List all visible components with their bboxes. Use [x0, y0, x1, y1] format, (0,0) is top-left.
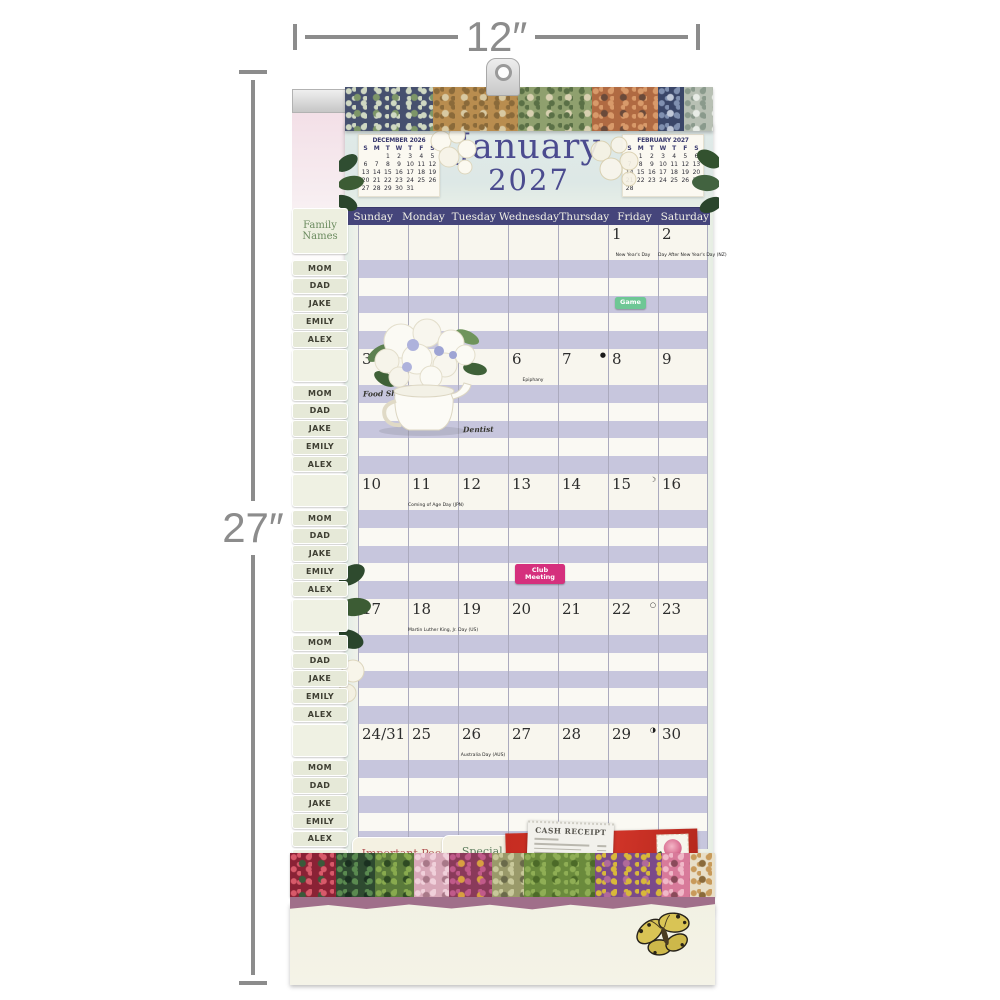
- minical-date: 8: [382, 161, 393, 169]
- family-name-tab: MOM: [292, 385, 348, 401]
- family-name-tab: MOM: [292, 260, 348, 276]
- minical-date: 31: [405, 185, 416, 193]
- holiday-note: Martin Luther King, Jr. Day (US): [408, 629, 458, 634]
- minical-date: 16: [393, 169, 404, 177]
- date-cell: 7●: [558, 349, 608, 385]
- member-row-stripe: [358, 760, 708, 778]
- minical-date: 9: [646, 161, 657, 169]
- holiday-note: Epiphany: [508, 379, 558, 384]
- family-name-tab: MOM: [292, 510, 348, 526]
- flower-cluster-icon: [423, 125, 481, 181]
- minical-day-label: T: [382, 145, 393, 153]
- minical-day-label: T: [405, 145, 416, 153]
- member-row-stripe: [358, 456, 708, 474]
- blank-tab: [292, 724, 348, 757]
- member-row-stripe: [358, 278, 708, 296]
- width-dimension-annotation: 12″: [293, 14, 700, 60]
- wall-calendar-product: DECEMBER 2026SMTWTFS12345678910111213141…: [290, 85, 715, 985]
- family-name-tab: EMILY: [292, 688, 348, 704]
- holiday-note: Day After New Year's Day (NZ): [658, 254, 708, 259]
- member-row-stripe: [358, 635, 708, 653]
- date-band: 24/312526Australia Day (AUS)272829◑30: [358, 724, 708, 760]
- date-cell: 6Epiphany: [508, 349, 558, 385]
- hanger-tab: [486, 58, 520, 96]
- moon-phase-icon: ○: [650, 601, 656, 609]
- blank-tab: [292, 349, 348, 382]
- holiday-note: New Year's Day: [608, 254, 658, 259]
- patchwork-tile: [595, 853, 662, 897]
- date-cell: 27: [508, 724, 558, 760]
- weekday-label: Thursday: [559, 211, 609, 223]
- moon-phase-icon: ◑: [650, 726, 656, 734]
- minical-date: 10: [405, 161, 416, 169]
- minical-date: 24: [657, 177, 668, 185]
- date-number: 11: [412, 475, 431, 493]
- date-band: 1011Coming of Age Day (JPN)12131415☽16: [358, 474, 708, 510]
- date-number: 13: [512, 475, 531, 493]
- minical-date: 25: [669, 177, 680, 185]
- minical-date: 3: [405, 153, 416, 161]
- date-cell: 12: [458, 474, 508, 510]
- patchwork-tile: [518, 87, 592, 131]
- minical-date: 24: [405, 177, 416, 185]
- minical-day-label: T: [646, 145, 657, 153]
- patchwork-tile: [662, 853, 690, 897]
- flower-cluster-icon: [581, 133, 645, 193]
- dimension-tick: [239, 981, 267, 985]
- date-cell: [408, 224, 458, 260]
- patchwork-tile: [290, 853, 336, 897]
- date-number: 14: [562, 475, 581, 493]
- patchwork-tile: [414, 853, 449, 897]
- event-sticker: Club Meeting: [515, 564, 565, 584]
- family-name-tab: ALEX: [292, 581, 348, 597]
- date-number: 1: [612, 225, 622, 243]
- member-row-stripe: [358, 671, 708, 689]
- date-number: 8: [612, 350, 622, 368]
- weekday-label: Monday: [398, 211, 448, 223]
- family-name-tab: ALEX: [292, 456, 348, 472]
- minical-date: 15: [382, 169, 393, 177]
- date-number: 27: [512, 725, 531, 743]
- butterfly-icon: [626, 903, 703, 969]
- date-number: 6: [512, 350, 522, 368]
- date-number: 25: [412, 725, 431, 743]
- minical-date: 14: [371, 169, 382, 177]
- date-number: 20: [512, 600, 531, 618]
- date-band: 1718Martin Luther King, Jr. Day (US)1920…: [358, 599, 708, 635]
- family-name-tab: ALEX: [292, 331, 348, 347]
- family-name-tab: ALEX: [292, 831, 348, 847]
- minical-date: 23: [393, 177, 404, 185]
- family-name-tab: EMILY: [292, 563, 348, 579]
- date-cell: 2Day After New Year's Day (NZ): [658, 224, 708, 260]
- date-number: 9: [662, 350, 672, 368]
- dimension-tick: [293, 24, 297, 50]
- moon-phase-icon: ☽: [650, 476, 656, 484]
- family-name-tab: EMILY: [292, 313, 348, 329]
- patchwork-tile: [658, 87, 684, 131]
- family-name-tab: MOM: [292, 760, 348, 776]
- family-names-header-tab: Family Names: [292, 208, 348, 254]
- blank-tab: [292, 599, 348, 632]
- patchwork-tile: [345, 87, 433, 131]
- date-cell: 16: [658, 474, 708, 510]
- bottom-patchwork-strip: [290, 853, 715, 897]
- date-number: 22: [612, 600, 631, 618]
- moon-phase-icon: ●: [600, 351, 606, 359]
- minical-day-label: T: [669, 145, 680, 153]
- family-name-tab: DAD: [292, 777, 348, 793]
- date-number: 29: [612, 725, 631, 743]
- weekday-label: Tuesday: [449, 211, 499, 223]
- holiday-note: Coming of Age Day (JPN): [408, 504, 458, 509]
- minical-date: 4: [669, 153, 680, 161]
- minical-day-label: M: [371, 145, 382, 153]
- minical-date: 23: [646, 177, 657, 185]
- date-number: 28: [562, 725, 581, 743]
- date-cell: [508, 224, 558, 260]
- minical-date: [669, 185, 680, 193]
- date-cell: 15☽: [608, 474, 658, 510]
- minical-date: [646, 185, 657, 193]
- family-name-tab: DAD: [292, 528, 348, 544]
- date-cell: 9: [658, 349, 708, 385]
- minical-date: 21: [371, 177, 382, 185]
- date-cell: [458, 224, 508, 260]
- minical-date: 18: [669, 169, 680, 177]
- date-cell: 14: [558, 474, 608, 510]
- date-number: 19: [462, 600, 481, 618]
- member-row-stripe: [358, 653, 708, 671]
- member-row-stripe: [358, 706, 708, 724]
- date-number: 7: [562, 350, 572, 368]
- width-dimension-label: 12″: [466, 16, 528, 58]
- minical-date: 2: [646, 153, 657, 161]
- date-number: 30: [662, 725, 681, 743]
- date-cell: 11Coming of Age Day (JPN): [408, 474, 458, 510]
- date-number: 2: [662, 225, 672, 243]
- date-number: 16: [662, 475, 681, 493]
- minical-date: 2: [393, 153, 404, 161]
- family-name-tab: JAKE: [292, 795, 348, 811]
- family-name-tab: ALEX: [292, 706, 348, 722]
- hanger-hole-icon: [495, 64, 512, 81]
- date-cell: 20: [508, 599, 558, 635]
- dimension-tick: [239, 70, 267, 74]
- family-name-tab: DAD: [292, 403, 348, 419]
- minical-date: 22: [382, 177, 393, 185]
- flower-bouquet-illustration: [355, 305, 497, 437]
- patchwork-tile: [336, 853, 375, 897]
- height-dimension-label: 27″: [222, 507, 284, 549]
- blank-tab: [292, 474, 348, 507]
- patchwork-tile: [524, 853, 595, 897]
- family-name-tab: JAKE: [292, 545, 348, 561]
- minical-date: [416, 185, 427, 193]
- minical-date: [427, 185, 438, 193]
- member-row-stripe: [358, 510, 708, 528]
- minical-week-row: 2728293031: [360, 185, 438, 193]
- family-name-tab: EMILY: [292, 438, 348, 454]
- date-cell: 23: [658, 599, 708, 635]
- family-name-tab: EMILY: [292, 813, 348, 829]
- family-name-tab: DAD: [292, 653, 348, 669]
- event-sticker: Game: [615, 297, 646, 309]
- top-patchwork-strip: [345, 87, 713, 131]
- minical-date: 17: [657, 169, 668, 177]
- date-number: 21: [562, 600, 581, 618]
- date-cell: 18Martin Luther King, Jr. Day (US): [408, 599, 458, 635]
- date-cell: 24/31: [358, 724, 408, 760]
- member-stripes: [358, 510, 708, 599]
- minical-date: 11: [669, 161, 680, 169]
- minical-date: 10: [657, 161, 668, 169]
- date-cell: 29◑: [608, 724, 658, 760]
- date-number: 12: [462, 475, 481, 493]
- minical-date: 16: [646, 169, 657, 177]
- patchwork-tile: [592, 87, 658, 131]
- dimension-line: [251, 555, 255, 976]
- member-stripes: [358, 635, 708, 724]
- date-cell: 28: [558, 724, 608, 760]
- date-band: 1New Year's Day2Day After New Year's Day…: [358, 224, 708, 260]
- date-cell: 10: [358, 474, 408, 510]
- weekday-header-bar: SundayMondayTuesdayWednesdayThursdayFrid…: [348, 207, 710, 225]
- calendar-week-row: 1718Martin Luther King, Jr. Day (US)1920…: [358, 599, 708, 724]
- family-name-tab: DAD: [292, 278, 348, 294]
- dimension-line: [535, 35, 688, 39]
- date-number: 15: [612, 475, 631, 493]
- minical-date: 1: [382, 153, 393, 161]
- patchwork-tile: [684, 87, 713, 131]
- minical-date: 30: [393, 185, 404, 193]
- date-number: 23: [662, 600, 681, 618]
- calendar-page: DECEMBER 2026SMTWTFS12345678910111213141…: [345, 125, 713, 915]
- date-cell: 1New Year's Day: [608, 224, 658, 260]
- dimension-tick: [696, 24, 700, 50]
- member-row-stripe: [358, 260, 708, 278]
- minical-date: [371, 153, 382, 161]
- date-cell: 21: [558, 599, 608, 635]
- receipt-title: CASH RECEIPT: [528, 826, 614, 838]
- calendar-header: DECEMBER 2026SMTWTFS12345678910111213141…: [345, 125, 713, 207]
- date-cell: [358, 224, 408, 260]
- date-cell: 22○: [608, 599, 658, 635]
- height-dimension-annotation: 27″: [218, 70, 288, 985]
- date-cell: 13: [508, 474, 558, 510]
- minical-date: 28: [371, 185, 382, 193]
- member-row-stripe: [358, 438, 708, 456]
- date-number: 24/31: [362, 725, 405, 743]
- member-row-stripe: [358, 778, 708, 796]
- minical-date: 9: [393, 161, 404, 169]
- dimension-line: [305, 35, 458, 39]
- family-name-tab: JAKE: [292, 670, 348, 686]
- minical-date: 29: [382, 185, 393, 193]
- product-image-canvas: 12″ 27″: [0, 0, 1000, 1000]
- family-name-tab: MOM: [292, 635, 348, 651]
- date-cell: 19: [458, 599, 508, 635]
- holiday-note: Australia Day (AUS): [458, 754, 508, 759]
- family-name-tab: JAKE: [292, 296, 348, 312]
- date-cell: [558, 224, 608, 260]
- date-cell: 26Australia Day (AUS): [458, 724, 508, 760]
- minical-date: [657, 185, 668, 193]
- weekday-label: Friday: [609, 211, 659, 223]
- date-cell: 30: [658, 724, 708, 760]
- date-cell: 8: [608, 349, 658, 385]
- patchwork-tile: [690, 853, 715, 897]
- dimension-line: [251, 80, 255, 501]
- weekday-label: Wednesday: [499, 211, 559, 223]
- member-row-stripe: [358, 528, 708, 546]
- date-number: 18: [412, 600, 431, 618]
- bottom-panel: [290, 903, 715, 985]
- family-names-sidebar: Family NamesMOMDADJAKEEMILYALEXMOMDADJAK…: [292, 208, 348, 885]
- minical-day-label: W: [657, 145, 668, 153]
- minical-day-label: W: [393, 145, 404, 153]
- member-row-stripe: [358, 546, 708, 564]
- minical-date: 17: [405, 169, 416, 177]
- member-row-stripe: [358, 796, 708, 814]
- date-number: 10: [362, 475, 381, 493]
- family-name-tab: JAKE: [292, 420, 348, 436]
- patchwork-tile: [449, 853, 492, 897]
- date-number: 26: [462, 725, 481, 743]
- calendar-week-row: 1011Coming of Age Day (JPN)12131415☽16Cl…: [358, 474, 708, 599]
- minical-date: 3: [657, 153, 668, 161]
- minical-date: 7: [371, 161, 382, 169]
- date-cell: 25: [408, 724, 458, 760]
- leaf-decoration-icon: [689, 143, 719, 223]
- patchwork-tile: [375, 853, 414, 897]
- patchwork-tile: [492, 853, 524, 897]
- member-row-stripe: [358, 688, 708, 706]
